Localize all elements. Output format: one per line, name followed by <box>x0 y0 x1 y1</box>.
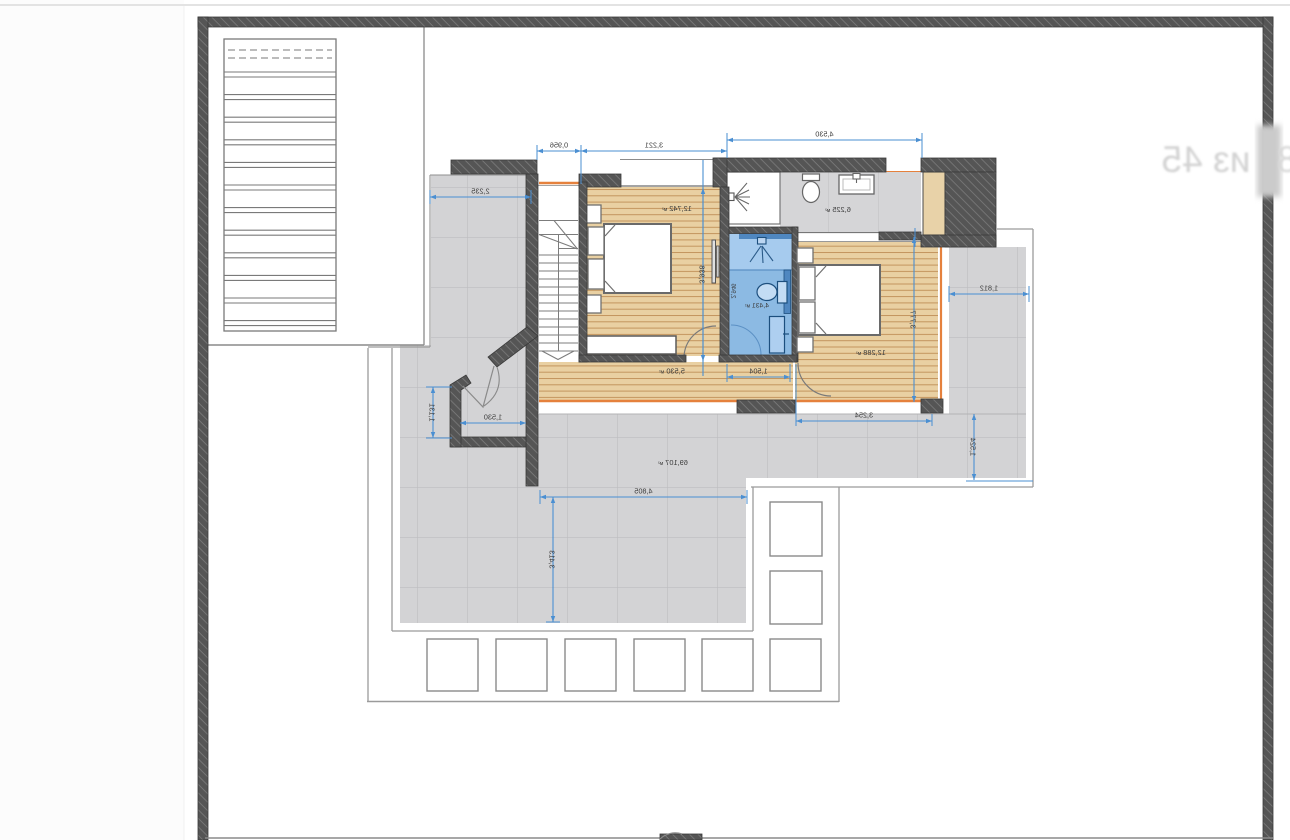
svg-text:1,530: 1,530 <box>484 413 502 422</box>
svg-text:2,235: 2,235 <box>471 187 489 196</box>
svg-text:3,254: 3,254 <box>855 411 873 420</box>
svg-text:1,131: 1,131 <box>428 403 437 421</box>
svg-text:0,956: 0,956 <box>550 141 568 150</box>
svg-text:4,431 м²: 4,431 м² <box>745 303 769 310</box>
svg-text:1,504: 1,504 <box>749 367 767 376</box>
svg-text:4,805: 4,805 <box>634 487 652 496</box>
svg-text:2,946: 2,946 <box>730 283 736 299</box>
svg-text:из 45: из 45 <box>1161 139 1250 180</box>
svg-text:3,221: 3,221 <box>645 141 663 150</box>
svg-text:1,812: 1,812 <box>980 284 998 293</box>
svg-text:3,777: 3,777 <box>909 310 918 328</box>
svg-text:3,413: 3,413 <box>548 550 557 568</box>
svg-text:8: 8 <box>1277 139 1290 180</box>
svg-text:1,524: 1,524 <box>969 438 978 456</box>
svg-text:3,938: 3,938 <box>698 265 707 283</box>
svg-text:4,530: 4,530 <box>815 130 833 139</box>
